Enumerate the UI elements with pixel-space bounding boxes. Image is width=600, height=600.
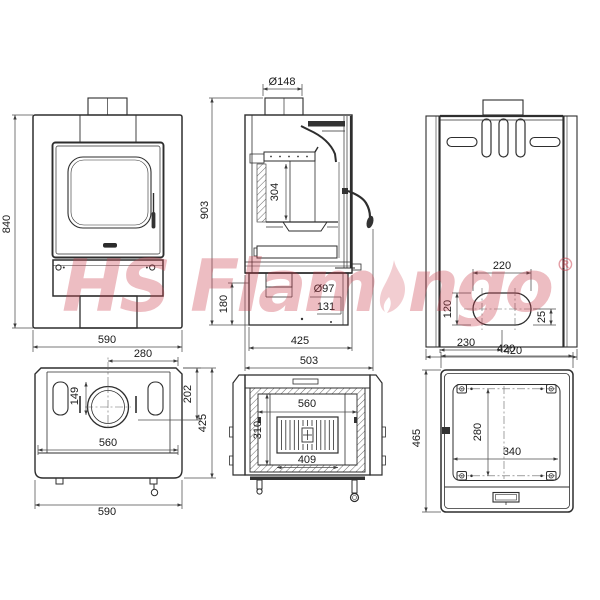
- dim-flue-center-depth: 202: [182, 385, 194, 403]
- dim-mount-spacing-depth: 280: [472, 423, 484, 441]
- hinge-pin: [257, 480, 262, 489]
- back-view: 220 120 25 230 420: [426, 100, 577, 360]
- handle-ball: [351, 494, 359, 502]
- dim-bottom-depth: 465: [411, 429, 423, 447]
- dim-ash-hole-diameter: Ø97: [314, 283, 335, 295]
- dim-front-height: 840: [1, 215, 13, 233]
- dim-slot-length: 149: [69, 387, 81, 405]
- technical-drawing-canvas: 840 590: [0, 0, 600, 600]
- plinth-base: [249, 273, 348, 325]
- bottom-plate: [453, 385, 560, 481]
- ash-drop-duct: [266, 273, 292, 287]
- dim-total-height: 903: [199, 201, 211, 219]
- bottom-outline: [441, 370, 573, 512]
- firebrick-lining: [257, 164, 266, 222]
- handle-pivot: [342, 188, 348, 194]
- top-vent-slot-right: [148, 382, 163, 415]
- side-wall-left-edge: [426, 116, 439, 347]
- dim-bottom-width: 420: [497, 343, 515, 355]
- foot-left: [56, 478, 63, 484]
- dim-front-width: 590: [98, 334, 116, 346]
- flue-stub-back: [483, 100, 523, 115]
- dim-firebox-inner-depth: 310: [252, 421, 264, 439]
- vent-slot: [499, 119, 508, 157]
- door-wing-left: [233, 375, 245, 475]
- handle-rod: [352, 480, 357, 493]
- damper-plate: [308, 121, 345, 127]
- dim-firebox-height: 304: [269, 183, 281, 201]
- top-vent-slot-left: [53, 382, 68, 415]
- vent-slot-horizontal: [530, 138, 560, 147]
- dim-ash-hole-offset: 131: [317, 301, 335, 313]
- ash-pan: [257, 246, 337, 258]
- dim-top-depth: 425: [197, 414, 209, 432]
- dim-flue-diameter: Ø148: [269, 76, 296, 88]
- dim-outlet-width: 220: [493, 260, 511, 272]
- latch-block: [442, 427, 450, 434]
- dim-grate-width: 409: [298, 454, 316, 466]
- vent-slot: [516, 119, 525, 157]
- dim-base-height: 180: [218, 295, 230, 313]
- door-glass: [68, 157, 151, 228]
- dim-outlet-edge-offset: 25: [536, 311, 548, 323]
- door-brand-nameplate: [103, 243, 117, 248]
- pedestal: [80, 296, 137, 328]
- handle-end-top-view: [151, 489, 157, 495]
- dim-outlet-left-offset: 230: [457, 337, 475, 349]
- top-view: 280 149 202 425 560 590: [35, 348, 216, 518]
- base-handle-slot: [493, 493, 519, 503]
- dim-top-width: 590: [98, 506, 116, 518]
- door-wing-right: [370, 375, 382, 475]
- dim-firebox-inner-width: 560: [298, 398, 316, 410]
- front-view: 840 590: [1, 98, 182, 352]
- bottom-view: 420 465 280 340: [411, 343, 573, 512]
- vent-slot: [482, 119, 491, 157]
- door-seal-bar: [250, 477, 365, 481]
- vent-slot-horizontal: [447, 138, 477, 147]
- dim-mount-spacing-width: 340: [503, 446, 521, 458]
- firebox-section-view: 560 310 409: [230, 375, 386, 502]
- stove-dimension-drawing: 840 590: [0, 0, 600, 600]
- dim-body-depth: 425: [291, 335, 309, 347]
- side-wall-right-edge: [564, 116, 577, 347]
- dim-outlet-height: 120: [442, 300, 454, 318]
- foot-right: [150, 478, 157, 484]
- dim-top-inner-width: 560: [99, 437, 117, 449]
- dim-overall-depth: 503: [300, 355, 318, 367]
- top-plate-outline: [35, 368, 182, 478]
- dim-flue-center-offset: 280: [134, 348, 152, 360]
- side-section-view: Ø148 903 304 180 Ø97 131 425 503: [199, 76, 375, 371]
